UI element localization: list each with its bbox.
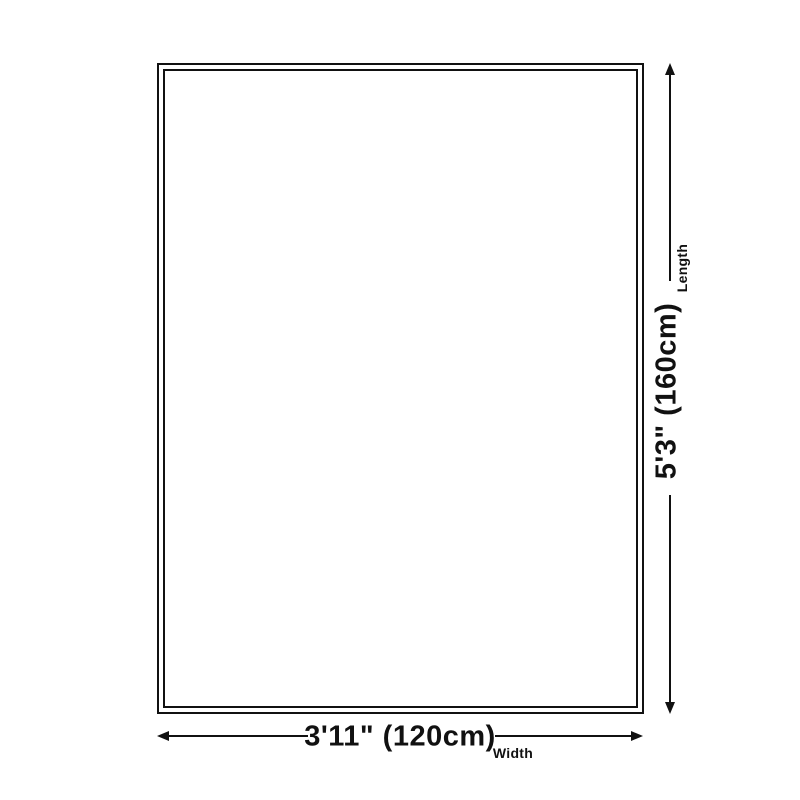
arrow-down-icon (665, 702, 675, 714)
width-caption: Width (493, 745, 533, 761)
length-dimension-line-bottom (669, 495, 671, 703)
length-dimension-line-top (669, 74, 671, 281)
rug-inner-border (163, 69, 638, 708)
width-value-label: 3'11" (120cm) (304, 721, 496, 754)
length-caption: Length (674, 244, 690, 292)
rug-outline (157, 63, 644, 714)
width-dimension-line-left (168, 735, 308, 737)
width-dimension-line-right (495, 735, 632, 737)
dimension-diagram: Length 5'3" (160cm) 3'11" (120cm) Width (0, 0, 800, 800)
arrow-right-icon (631, 731, 643, 741)
length-value-label: 5'3" (160cm) (651, 303, 684, 480)
